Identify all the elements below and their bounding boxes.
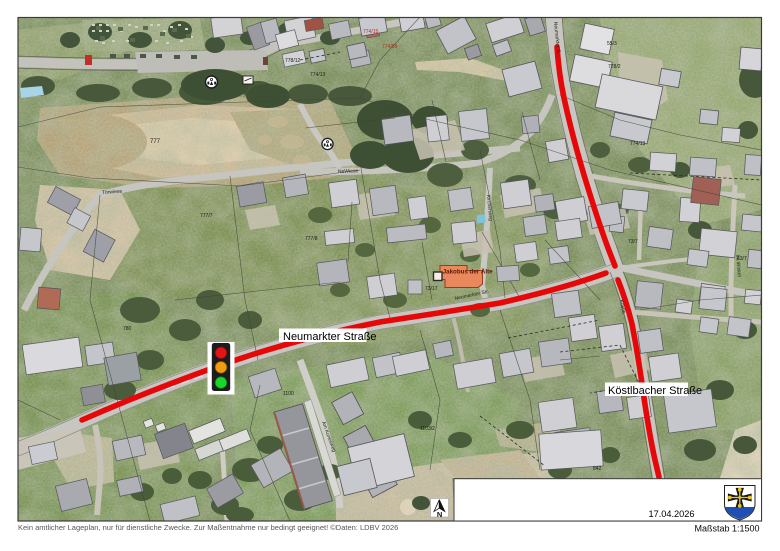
svg-text:17.04.2026: 17.04.2026	[649, 509, 695, 519]
svg-text:73/17: 73/17	[425, 286, 438, 292]
svg-text:1100: 1100	[283, 391, 294, 397]
svg-text:Kein amtlicher Lageplan, nur f: Kein amtlicher Lageplan, nur für dienstl…	[18, 523, 398, 532]
svg-text:N: N	[437, 510, 442, 519]
svg-text:780: 780	[123, 326, 132, 332]
svg-text:1103/2: 1103/2	[420, 426, 435, 432]
svg-text:774/13: 774/13	[310, 72, 326, 78]
svg-text:778/2: 778/2	[608, 64, 621, 70]
svg-text:55/3: 55/3	[607, 41, 617, 47]
svg-text:842: 842	[593, 466, 602, 472]
svg-text:73/7: 73/7	[628, 239, 638, 245]
svg-text:NeWiese: NeWiese	[338, 168, 359, 175]
svg-text:.Jakobus der Älte: .Jakobus der Älte	[441, 269, 493, 276]
svg-text:777: 777	[150, 139, 161, 145]
svg-text:Maßstab 1:1500: Maßstab 1:1500	[694, 523, 759, 533]
svg-text:774/88: 774/88	[382, 44, 398, 50]
svg-text:774/13: 774/13	[630, 141, 646, 147]
svg-text:774/15: 774/15	[363, 29, 379, 35]
svg-text:Köstlbacher Straße: Köstlbacher Straße	[608, 385, 702, 397]
svg-text:777/8: 777/8	[305, 236, 318, 242]
svg-text:778/12: 778/12	[285, 58, 301, 64]
svg-text:777/7: 777/7	[200, 213, 213, 219]
svg-text:Neumarkter Straße: Neumarkter Straße	[283, 331, 377, 343]
